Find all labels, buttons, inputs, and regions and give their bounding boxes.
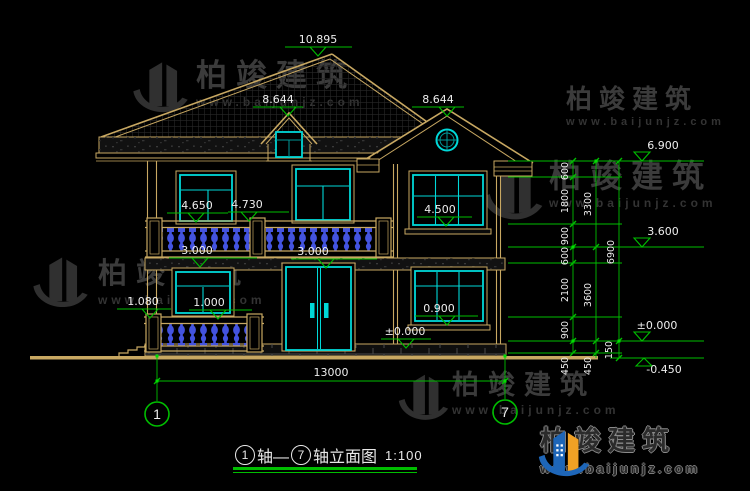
entry-steps (119, 345, 146, 356)
balcony-door-middle (292, 165, 354, 223)
dim-1800: 1800 (560, 189, 571, 213)
brand-logo-colored: 柏竣建筑 www.baijunjz.com (534, 420, 700, 476)
dim-150: 150 (604, 341, 615, 359)
marker-ridge: 10.895 (299, 33, 338, 46)
marker-neg450: -0.450 (646, 363, 681, 376)
axis-circle-1: 1 (235, 445, 255, 465)
dim-3300: 3300 (583, 192, 594, 216)
drawing-title: 1轴—7轴立面图1:100 (233, 443, 423, 467)
marker-0900: 0.900 (423, 302, 455, 315)
title-underline (233, 467, 417, 470)
title-suffix: 轴立面图 (313, 443, 377, 467)
elevation-drawing: 600 1800 900 600 2100 900 450 3300 3600 … (0, 0, 750, 491)
marker-3600: 3.600 (647, 225, 679, 238)
marker-zero-left: ±0.000 (385, 325, 426, 338)
dim-600a: 600 (560, 162, 571, 180)
dim-6900: 6900 (606, 240, 617, 264)
marker-1080: 1.080 (127, 295, 159, 308)
round-window (437, 130, 458, 151)
balcony-door-left (176, 171, 236, 224)
dim-450b: 450 (583, 357, 594, 375)
dim-3600: 3600 (583, 283, 594, 307)
marker-1000: 1.000 (193, 296, 225, 309)
dormer-window (276, 132, 302, 157)
dim-450a: 450 (560, 357, 571, 375)
marker-6900: 6.900 (647, 139, 679, 152)
marker-zero-right: ±0.000 (637, 319, 678, 332)
marker-dormer: 8.644 (262, 93, 294, 106)
title-underline-2 (233, 472, 417, 474)
title-scale: 1:100 (385, 448, 423, 463)
dim-900a: 900 (560, 227, 571, 245)
door-handle-left (310, 303, 315, 318)
entrance-door (282, 263, 355, 351)
marker-3000a: 3.000 (181, 244, 213, 257)
door-handle-right (324, 303, 329, 318)
marker-4650: 4.650 (181, 199, 213, 212)
cad-elevation-canvas: 柏竣建筑 www.baijunjz.com 柏竣建筑 www.baijunjz.… (0, 0, 750, 491)
axis-bubble-7: 7 (501, 404, 509, 420)
main-eave (96, 137, 403, 161)
axis-bubbles: 1 7 (145, 400, 517, 426)
ground-line (30, 356, 598, 360)
dim-900b: 900 (560, 321, 571, 339)
marker-4730: 4.730 (231, 198, 263, 211)
window-lower-right (408, 267, 490, 330)
axis-bubble-1: 1 (153, 406, 161, 422)
title-mid: 轴— (257, 443, 289, 467)
marker-4500: 4.500 (424, 203, 456, 216)
brand-building-icon-colored (534, 420, 592, 486)
marker-3000b: 3.000 (297, 245, 329, 258)
marker-gable: 8.644 (422, 93, 454, 106)
dim-13000: 13000 (314, 366, 349, 379)
dim-2100: 2100 (560, 278, 571, 302)
dim-600b: 600 (560, 247, 571, 265)
axis-circle-7: 7 (291, 445, 311, 465)
porch-railing (144, 314, 264, 352)
